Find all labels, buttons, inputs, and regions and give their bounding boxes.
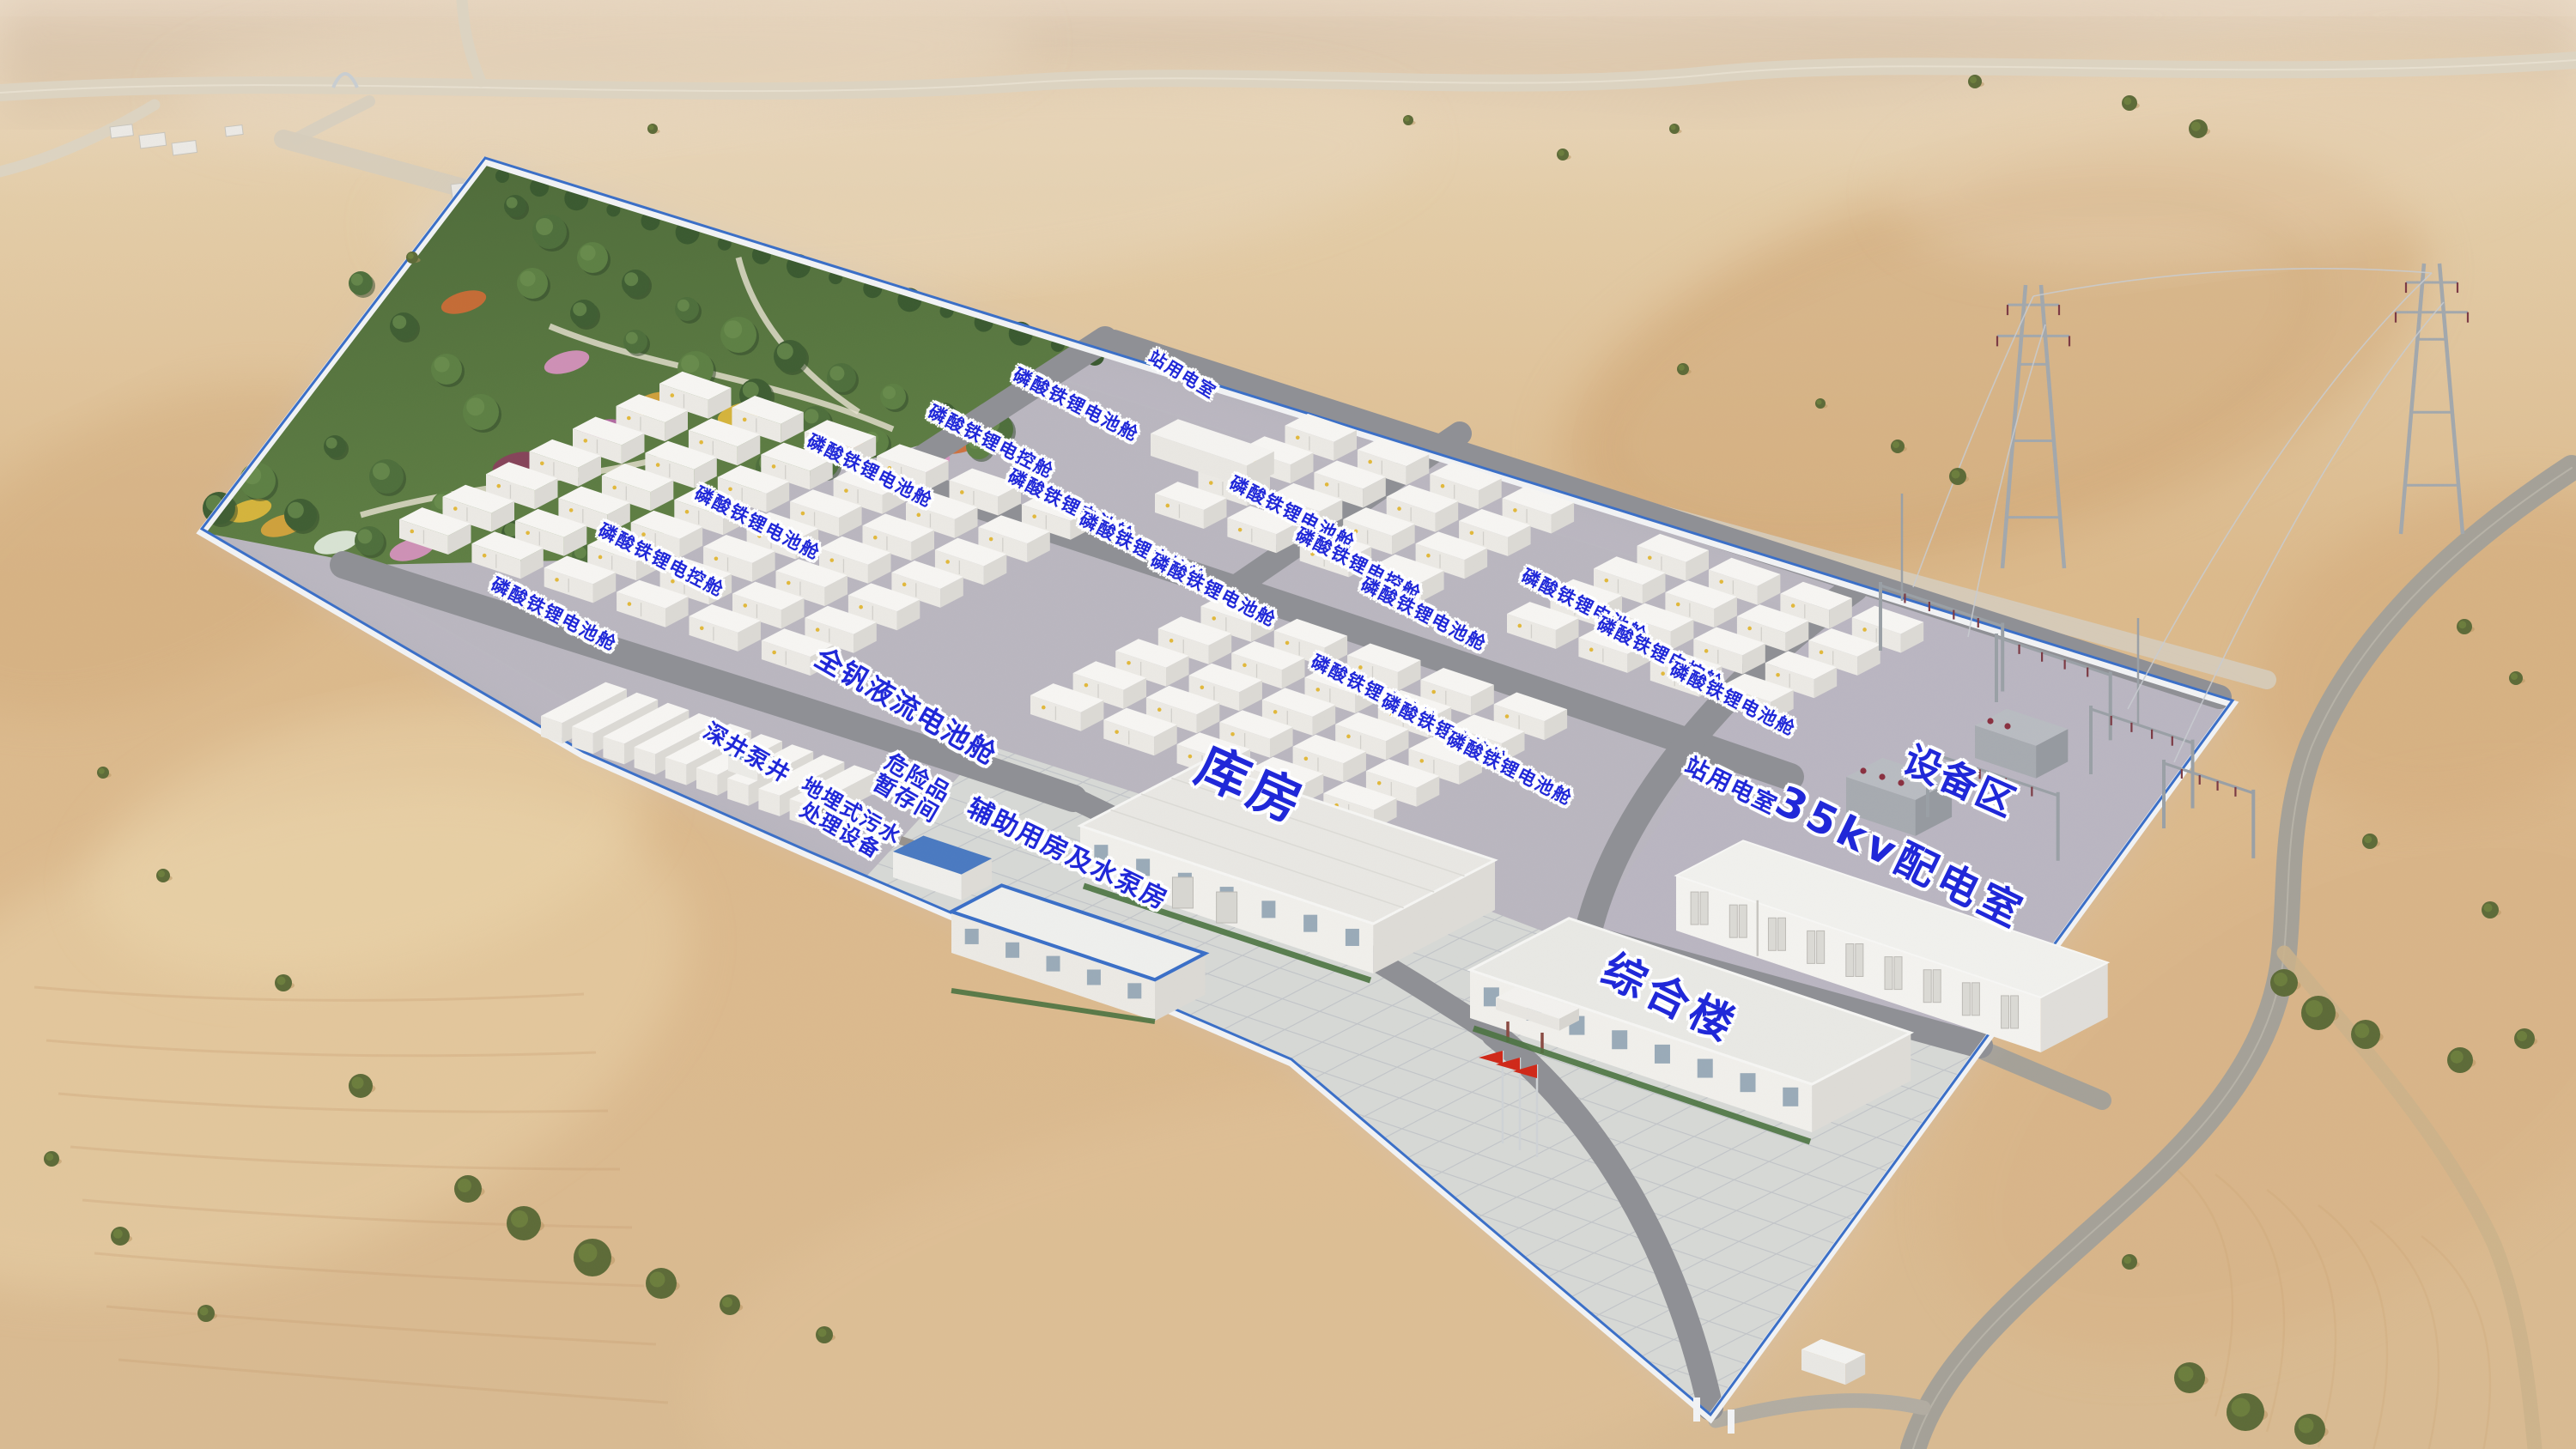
site-rendering (0, 0, 2576, 1449)
aerial-site-plan: 磷酸铁锂电池舱磷酸铁锂电控舱磷酸铁锂电池舱磷酸铁锂电池舱磷酸铁锂电控舱磷酸铁锂电… (0, 0, 2576, 1449)
